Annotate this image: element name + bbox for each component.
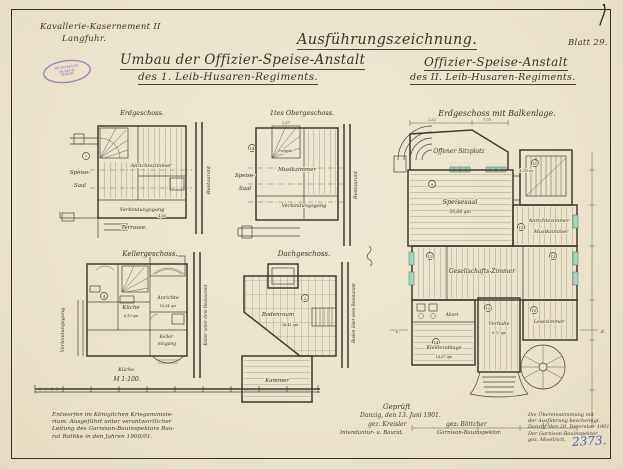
approval-gep: Geprüft — [383, 403, 410, 411]
plans-drawing: Erdgeschoss. 7 Speise- Saal Anrichtezimm… — [0, 0, 623, 469]
plan-hauptgrundriss: Erdgeschoss mit Balkenlage. Offener Sitz… — [390, 109, 606, 431]
scale-label: M 1:100. — [112, 376, 140, 383]
plan3-label-keller2: eingang — [158, 341, 176, 347]
plan1-label-anrichtezimmer: Anrichtezimmer — [130, 163, 172, 169]
plan3-kueche-area: 6,10 qm — [124, 314, 139, 318]
plan5-vorhalle-area: 9,72 qm — [492, 331, 507, 335]
plan4-room-number: 2 — [303, 296, 307, 301]
plan5-kleider-area: 14,97 qm — [436, 355, 453, 359]
plan-kellergeschoss: Kellergeschoss. 4 Küche 6,10 qm Anrichte… — [60, 250, 208, 378]
plan3-label-annex: Küche. — [117, 367, 136, 373]
plan5-num-9: 9 — [431, 182, 434, 187]
plan2-dim: 2,37 — [281, 121, 291, 125]
plan2-label-treppe: Treppe — [278, 148, 293, 153]
plan1-label-verbindungsgang: Verbindungsgang — [120, 207, 165, 213]
plan5-label-sitzplatz: Offener Sitzplatz — [433, 148, 485, 155]
plan2-title: 1tes Obergeschoss. — [270, 109, 334, 117]
plan5-title: Erdgeschoss mit Balkenlage. — [437, 109, 556, 118]
plan5-label-kleiderablage: Kleiderablage — [425, 345, 461, 351]
plan5-num-11: 11 — [518, 225, 523, 230]
plan1-room-number: 7 — [85, 154, 88, 159]
approval-date: Danzig, den 13. Juni 1901. — [360, 412, 441, 419]
plan3-label-keller1: Keller- — [158, 334, 175, 340]
plan1-title: Erdgeschoss. — [119, 109, 164, 117]
plan1-dim: 4,50 — [157, 214, 167, 218]
approval-role-1: Intendantur- u. Baurat. — [340, 430, 404, 436]
plan5-num-10: 10 — [532, 161, 538, 166]
plan3-label-verbindungsgang: Verbindungsgang — [60, 308, 66, 353]
plan2-room-number: 14 — [249, 146, 255, 151]
plan4-title: Dachgeschoss. — [277, 250, 330, 258]
plan5-label-abort: Abort — [445, 312, 459, 318]
plan-dachgeschoss: Dachgeschoss. 2 Bodenraum 34,41 qm Kamme… — [242, 246, 372, 402]
plan2-label-speise: Speise- — [235, 173, 255, 179]
drawing-sheet: Kavallerie-Kasernement II Langfuhr. ARCH… — [0, 0, 623, 469]
execution-note: Entworfen im Königlichen Kriegsministe- … — [52, 412, 175, 441]
plan5-section-mark-c: c. — [396, 329, 401, 335]
plan3-title: Kellergeschoss. — [121, 250, 177, 258]
plan4-label-kammer: Kammer — [264, 378, 289, 384]
plan1-label-terrasse: Terrasse. — [121, 225, 147, 231]
plan5-label-vorhalle: Vorhalle — [489, 321, 510, 327]
plan1-label-restaurant: Restaurant — [206, 165, 212, 195]
plan1-label-saal: Saal — [74, 183, 86, 189]
plan4-label-bodenraum: Bodenraum — [261, 312, 294, 318]
plan5-label-anrichtezimmer: Anrichtezimmer — [528, 218, 570, 224]
plan5-num-14: 14 — [433, 340, 439, 345]
plan2-label-saal: Saal — [239, 186, 251, 192]
registry-number: 2373. — [572, 433, 607, 449]
plan5-label-lesezimmer: Lesezimmer — [533, 319, 565, 325]
approval-signature-2: gez. Böttcher — [446, 421, 487, 428]
execution-note-line1: Entworfen im Königlichen Kriegsministe- — [52, 412, 175, 419]
plan5-num-16: 16 — [531, 308, 537, 313]
approval-role-2: Garnison-Bauinspektor. — [437, 430, 501, 436]
plan5-label-gesellschaftszimmer: Gesellschafts-Zimmer — [449, 268, 516, 275]
plan-erdgeschoss: Erdgeschoss. 7 Speise- Saal Anrichtezimm… — [60, 109, 212, 238]
plan-obergeschoss: 1tes Obergeschoss. 14 2,37 Treppe Speise… — [235, 109, 359, 246]
plan3-label-kueche: Küche — [121, 305, 140, 311]
plan4-boden-area: 34,41 qm — [282, 323, 299, 327]
plan1-label-speise: Speise- — [70, 170, 90, 176]
plan3-label-anrichte: Anrichte — [156, 295, 179, 301]
plan5-label-speisesaal: Speisesaal — [443, 198, 478, 206]
plan3-anrichte-area: 16,54 qm — [160, 304, 177, 308]
certification-line3: Danzig, den 20. Dezember 1901. — [528, 424, 611, 430]
plan5-speisesaal-area: 59,68 qm — [449, 209, 470, 215]
approval-signature-1: gez. Kreisler — [368, 421, 407, 428]
plan5-num-15: 15 — [485, 306, 491, 311]
plan5-dim-treppe: 4,70 m — [518, 168, 533, 173]
plan5-dim-porch-left: 2,52 — [427, 118, 437, 122]
execution-note-line3: Leitung des Garnison-Bauinspektors Bau- — [52, 426, 175, 433]
plan5-label-musikzimmer: Musikzimmer — [533, 229, 569, 235]
plan5-num-13: 13 — [550, 254, 556, 259]
ink-stroke-mark — [600, 4, 605, 25]
plan2-label-restaurant: Restaurant — [353, 170, 359, 200]
execution-note-line2: rium. Ausgeführt unter verantwortlicher — [52, 419, 175, 426]
plan2-label-musikzimmer: Musikzimmer — [277, 167, 316, 173]
plan3-room-number: 4 — [102, 294, 106, 299]
plan5-section-mark-d: d. — [601, 329, 606, 335]
plan2-label-verbindungsgang: Verbindungsgang — [282, 203, 327, 209]
plan5-num-12: 12 — [427, 254, 433, 259]
plan4-label-boden-restaurant: Boden über dem Restaurant — [351, 283, 356, 344]
plan3-label-keller-restaurant: Keller unter dem Restaurant — [203, 284, 208, 346]
execution-note-line4: rat Rothke in den Jahren 1900/01. — [52, 434, 175, 441]
plan5-dim-porch-right: 7,75 — [483, 118, 492, 122]
